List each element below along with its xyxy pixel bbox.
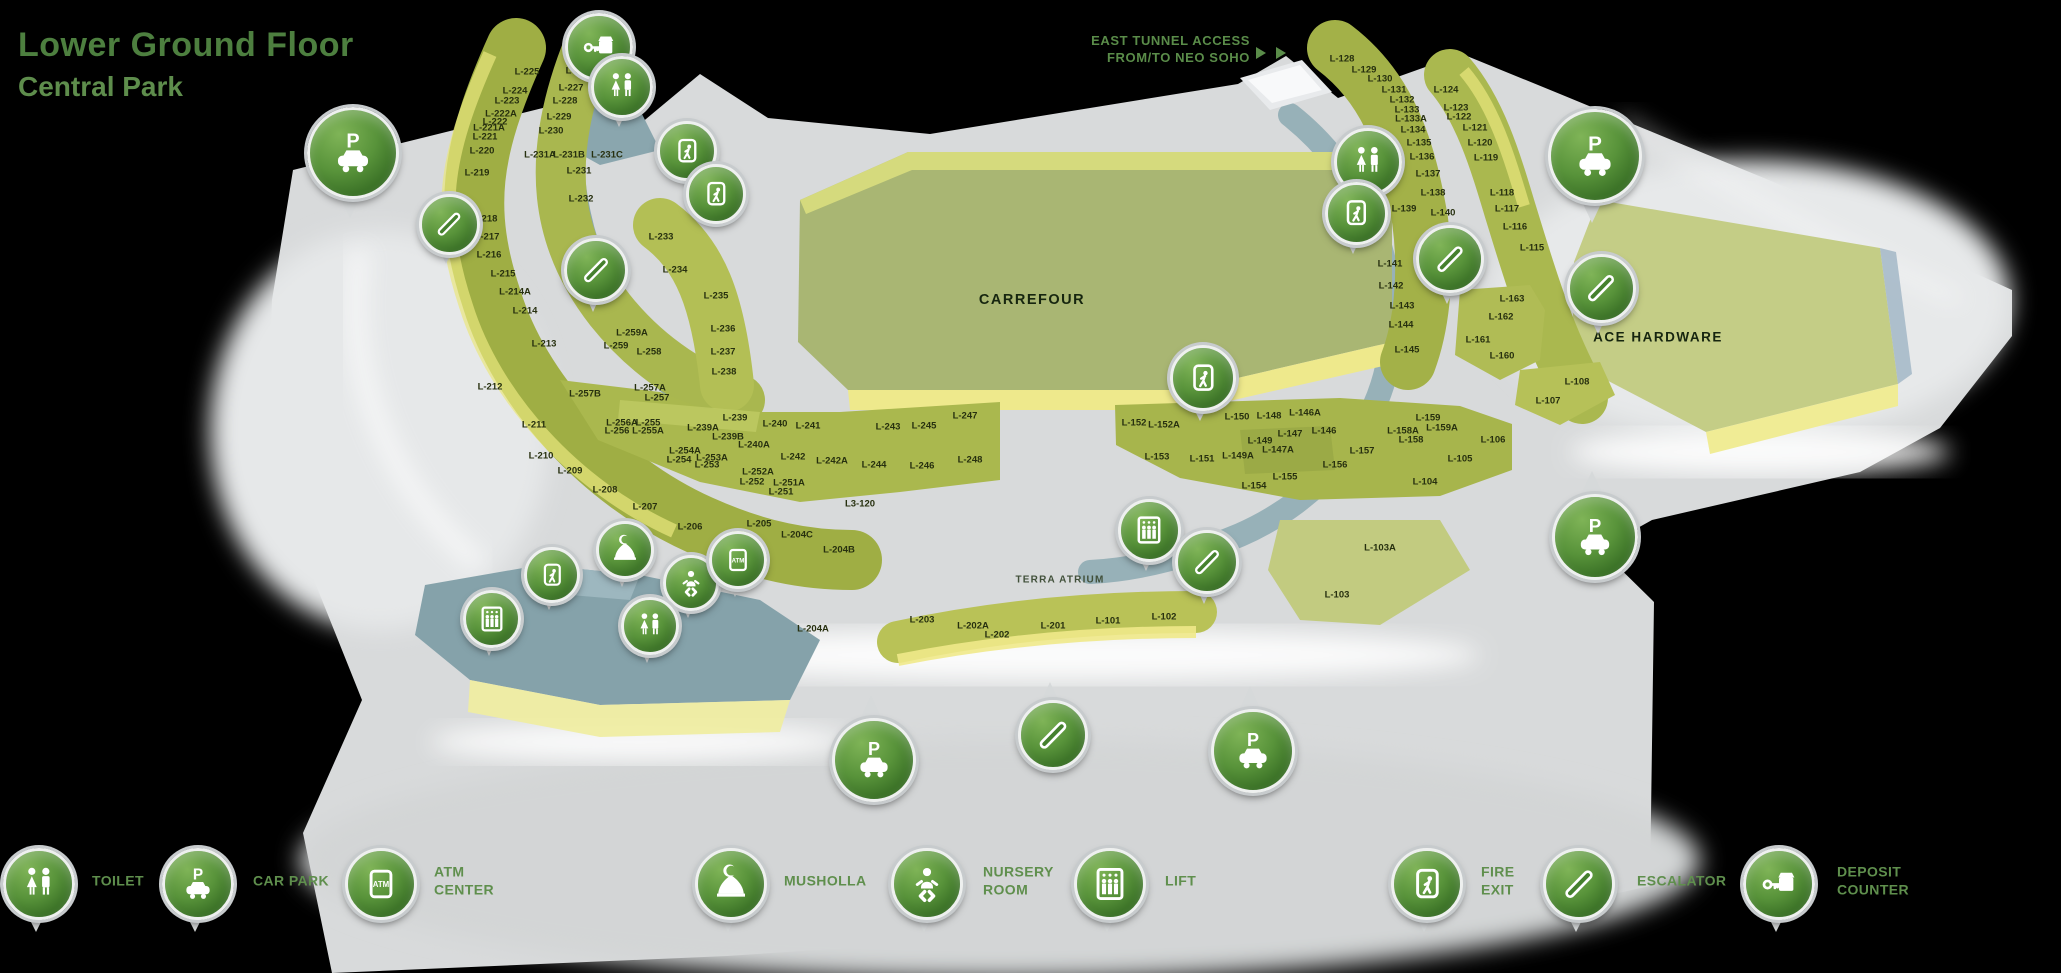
toilet-icon xyxy=(634,610,666,642)
unit-label-L-256: L-256 xyxy=(605,426,630,437)
unit-label-L-257: L-257 xyxy=(645,393,670,404)
unit-label-L-104: L-104 xyxy=(1413,477,1438,488)
lift-pin xyxy=(1118,499,1175,556)
musholla-icon xyxy=(711,864,752,905)
unit-label-L3-120: L3-120 xyxy=(845,499,875,510)
unit-label-L-106: L-106 xyxy=(1481,435,1506,446)
lift-icon xyxy=(1090,864,1131,905)
unit-label-L-151: L-151 xyxy=(1190,454,1215,465)
unit-label-L-203: L-203 xyxy=(910,615,935,626)
unit-label-L-251: L-251 xyxy=(769,487,794,498)
unit-label-L-212: L-212 xyxy=(478,382,503,393)
unit-label-L-105: L-105 xyxy=(1448,454,1473,465)
unit-label-L-202: L-202 xyxy=(985,630,1010,641)
toilet-pin xyxy=(621,597,673,649)
legend-label-escalator: ESCALATOR xyxy=(1637,872,1726,890)
carpark-pin xyxy=(162,848,228,914)
unit-label-L-241: L-241 xyxy=(796,421,821,432)
carpark-pin xyxy=(1552,494,1632,574)
carpark-pin-bubble xyxy=(832,718,916,802)
unit-label-L-145: L-145 xyxy=(1395,345,1420,356)
fireexit-pin-bubble xyxy=(1170,345,1236,411)
atm-pin xyxy=(345,848,411,914)
fireexit-pin xyxy=(686,164,740,218)
escalator-pin-bubble xyxy=(419,194,480,255)
unit-label-L-259A: L-259A xyxy=(616,328,648,339)
unit-label-L-259: L-259 xyxy=(604,341,629,352)
lift-pin-bubble xyxy=(1074,848,1146,920)
escalator-pin-bubble xyxy=(1018,700,1088,770)
unit-label-L-138: L-138 xyxy=(1421,188,1446,199)
unit-label-L-122: L-122 xyxy=(1447,112,1472,123)
deposit-pin-bubble xyxy=(1743,848,1815,920)
unit-label-L-154: L-154 xyxy=(1242,481,1267,492)
unit-label-L-143: L-143 xyxy=(1390,301,1415,312)
legend-label-atm: ATM CENTER xyxy=(434,864,494,899)
carpark-pin xyxy=(832,718,910,796)
escalator-icon xyxy=(1582,269,1621,308)
unit-label-L-133A: L-133A xyxy=(1395,114,1427,125)
atm-pin xyxy=(709,531,761,583)
unit-label-L-134: L-134 xyxy=(1401,125,1426,136)
carpark-icon xyxy=(850,736,898,784)
nursery-icon xyxy=(907,864,948,905)
unit-label-L-233: L-233 xyxy=(649,232,674,243)
unit-label-L-228: L-228 xyxy=(553,96,578,107)
lift-pin xyxy=(1074,848,1140,914)
page-title: Lower Ground Floor Central Park xyxy=(18,26,354,103)
fireexit-pin-bubble xyxy=(524,547,580,603)
deposit-icon xyxy=(1759,864,1800,905)
unit-label-L-117: L-117 xyxy=(1495,204,1519,215)
unit-label-L-221: L-221 xyxy=(473,132,498,143)
escalator-pin xyxy=(419,194,474,249)
unit-label-L-158: L-158 xyxy=(1399,435,1424,446)
unit-label-L-244: L-244 xyxy=(862,460,887,471)
lift-pin-bubble xyxy=(463,590,521,648)
unit-label-L-160: L-160 xyxy=(1490,351,1515,362)
fireexit-pin xyxy=(1391,848,1457,914)
unit-label-L-210: L-210 xyxy=(529,451,554,462)
fireexit-icon xyxy=(1339,196,1374,231)
unit-label-L-204C: L-204C xyxy=(781,530,813,541)
lift-icon xyxy=(476,603,508,635)
floor-title: Lower Ground Floor xyxy=(18,26,354,65)
unit-label-L-148: L-148 xyxy=(1257,411,1282,422)
unit-label-L-231A: L-231A xyxy=(524,150,556,161)
unit-label-L-240A: L-240A xyxy=(738,440,770,451)
tunnel-arrow-icon xyxy=(1276,47,1286,59)
fireexit-pin xyxy=(524,547,574,597)
atm-icon xyxy=(361,864,402,905)
unit-label-L-120: L-120 xyxy=(1468,138,1493,149)
toilet-pin-bubble xyxy=(621,597,679,655)
unit-label-L-227: L-227 xyxy=(559,83,584,94)
unit-label-L-242A: L-242A xyxy=(816,456,848,467)
unit-label-L-147: L-147 xyxy=(1278,429,1303,440)
unit-label-L-153: L-153 xyxy=(1145,452,1170,463)
nursery-pin xyxy=(891,848,957,914)
unit-label-L-204B: L-204B xyxy=(823,545,855,556)
east-tunnel-label: EAST TUNNEL ACCESS FROM/TO NEO SOHO xyxy=(1091,33,1250,67)
escalator-icon xyxy=(578,252,614,288)
legend-label-carpark: CAR PARK xyxy=(253,872,329,890)
unit-label-L-144: L-144 xyxy=(1389,320,1414,331)
escalator-pin xyxy=(1416,225,1478,287)
musholla-pin xyxy=(596,521,648,573)
unit-label-L-208: L-208 xyxy=(593,485,618,496)
toilet-icon xyxy=(19,864,60,905)
nursery-icon xyxy=(676,568,707,599)
unit-label-L-231: L-231 xyxy=(567,166,592,177)
fireexit-pin-bubble xyxy=(1391,848,1463,920)
musholla-icon xyxy=(609,534,641,566)
unit-label-L-150: L-150 xyxy=(1225,412,1250,423)
legend-label-deposit: DEPOSIT COUNTER xyxy=(1837,864,1909,899)
carpark-pin-bubble xyxy=(307,107,399,199)
unit-label-L-230: L-230 xyxy=(539,126,564,137)
unit-label-L-213: L-213 xyxy=(532,339,557,350)
escalator-pin xyxy=(1175,530,1233,588)
unit-label-L-215: L-215 xyxy=(491,269,516,280)
escalator-pin xyxy=(564,238,622,296)
unit-label-L-128: L-128 xyxy=(1330,54,1355,65)
carpark-pin-bubble xyxy=(1548,109,1642,203)
unit-label-L-159A: L-159A xyxy=(1426,423,1458,434)
unit-label-L-214A: L-214A xyxy=(499,287,531,298)
atm-pin-bubble xyxy=(709,531,767,589)
mall-floorplan: P ATM xyxy=(0,0,2061,973)
unit-label-L-255A: L-255A xyxy=(632,426,664,437)
unit-label-L-252: L-252 xyxy=(740,477,765,488)
unit-label-L-141: L-141 xyxy=(1378,259,1403,270)
toilet-pin xyxy=(3,848,69,914)
unit-label-L-152: L-152 xyxy=(1122,418,1147,429)
unit-label-L-214: L-214 xyxy=(513,306,538,317)
unit-label-L-101: L-101 xyxy=(1096,616,1121,627)
unit-label-L-161: L-161 xyxy=(1466,335,1491,346)
unit-label-L-238: L-238 xyxy=(712,367,737,378)
fireexit-icon xyxy=(537,560,568,591)
atm-pin-bubble xyxy=(345,848,417,920)
unit-label-L-223: L-223 xyxy=(495,96,520,107)
unit-label-L-137: L-137 xyxy=(1416,169,1441,180)
unit-label-L-103A: L-103A xyxy=(1364,543,1396,554)
carpark-pin xyxy=(1211,709,1289,787)
musholla-pin-bubble xyxy=(695,848,767,920)
escalator-pin xyxy=(1543,848,1609,914)
unit-label-L-242: L-242 xyxy=(781,452,806,463)
carpark-icon xyxy=(178,864,219,905)
unit-label-L-156: L-156 xyxy=(1323,460,1348,471)
lift-pin xyxy=(463,590,515,642)
unit-label-L-140: L-140 xyxy=(1431,208,1456,219)
lift-pin-bubble xyxy=(1118,499,1181,562)
unit-label-L-119: L-119 xyxy=(1474,153,1498,164)
lift-icon xyxy=(1132,513,1167,548)
escalator-pin xyxy=(1567,254,1630,317)
unit-label-L-235: L-235 xyxy=(704,291,729,302)
unit-label-L-236: L-236 xyxy=(711,324,736,335)
toilet-icon xyxy=(605,70,640,105)
unit-label-L-201: L-201 xyxy=(1041,621,1066,632)
unit-label-L-124: L-124 xyxy=(1434,85,1459,96)
unit-label-L-205: L-205 xyxy=(747,519,772,530)
escalator-pin-bubble xyxy=(1543,848,1615,920)
unit-label-L-162: L-162 xyxy=(1489,312,1514,323)
musholla-pin-bubble xyxy=(596,521,654,579)
fireexit-icon xyxy=(1407,864,1448,905)
atm-icon xyxy=(722,544,754,576)
unit-label-L-102: L-102 xyxy=(1152,612,1177,623)
fireexit-pin-bubble xyxy=(1325,182,1388,245)
deposit-pin xyxy=(1743,848,1809,914)
unit-label-L-136: L-136 xyxy=(1410,152,1435,163)
carpark-pin-bubble xyxy=(1552,494,1638,580)
unit-label-L-206: L-206 xyxy=(678,522,703,533)
unit-label-L-254: L-254 xyxy=(667,455,692,466)
unit-label-L-257B: L-257B xyxy=(569,389,601,400)
toilet-pin-bubble xyxy=(591,56,653,118)
carpark-pin xyxy=(307,107,393,193)
unit-label-L-231B: L-231B xyxy=(553,150,585,161)
unit-label-L-142: L-142 xyxy=(1379,281,1404,292)
unit-label-L-253: L-253 xyxy=(695,460,720,471)
unit-label-L-216: L-216 xyxy=(477,250,502,261)
unit-label-L-234: L-234 xyxy=(663,265,688,276)
unit-label-L-103: L-103 xyxy=(1325,590,1350,601)
ace-hardware-label: ACE HARDWARE xyxy=(1593,330,1723,345)
escalator-icon xyxy=(1189,544,1225,580)
legend-label-fireexit: FIRE EXIT xyxy=(1481,864,1515,899)
unit-label-L-155: L-155 xyxy=(1273,472,1298,483)
escalator-pin xyxy=(1018,700,1082,764)
escalator-pin-bubble xyxy=(1175,530,1239,594)
escalator-pin-bubble xyxy=(1416,225,1484,293)
unit-label-L-130: L-130 xyxy=(1368,74,1393,85)
toilet-pin-bubble xyxy=(3,848,75,920)
unit-label-L-115: L-115 xyxy=(1520,243,1544,254)
toilet-icon xyxy=(1349,143,1387,181)
toilet-pin xyxy=(591,56,647,112)
terra-atrium-label: TERRA ATRIUM xyxy=(1015,575,1104,586)
unit-label-L-207: L-207 xyxy=(633,502,658,513)
fireexit-icon xyxy=(700,178,733,211)
carpark-icon xyxy=(327,127,380,180)
carpark-pin-bubble xyxy=(162,848,234,920)
nursery-pin-bubble xyxy=(891,848,963,920)
unit-label-L-219: L-219 xyxy=(465,168,490,179)
unit-label-L-232: L-232 xyxy=(569,194,594,205)
unit-label-L-229: L-229 xyxy=(547,112,572,123)
carrefour-label: CARREFOUR xyxy=(979,292,1085,308)
unit-label-L-147A: L-147A xyxy=(1262,445,1294,456)
unit-label-L-258: L-258 xyxy=(637,347,662,358)
unit-label-L-163: L-163 xyxy=(1500,294,1525,305)
fireexit-pin-bubble xyxy=(686,164,746,224)
unit-label-L-146: L-146 xyxy=(1312,426,1337,437)
unit-label-L-209: L-209 xyxy=(558,466,583,477)
legend-label-musholla: MUSHOLLA xyxy=(784,872,867,890)
legend-label-nursery: NURSERY ROOM xyxy=(983,864,1054,899)
unit-label-L-118: L-118 xyxy=(1490,188,1514,199)
escalator-icon xyxy=(1033,715,1073,755)
legend-label-toilet: TOILET xyxy=(92,872,144,890)
unit-label-L-239: L-239 xyxy=(723,413,748,424)
unit-label-L-237: L-237 xyxy=(711,347,736,358)
unit-label-L-135: L-135 xyxy=(1407,138,1432,149)
carpark-icon xyxy=(1568,129,1623,184)
unit-label-L-146A: L-146A xyxy=(1289,408,1321,419)
carpark-pin xyxy=(1548,109,1636,197)
tunnel-arrow-icon xyxy=(1256,47,1266,59)
unit-label-L-204A: L-204A xyxy=(797,624,829,635)
fireexit-pin xyxy=(1170,345,1230,405)
unit-label-L-246: L-246 xyxy=(910,461,935,472)
escalator-icon xyxy=(1559,864,1600,905)
unit-label-L-157: L-157 xyxy=(1350,446,1375,457)
fireexit-pin xyxy=(1325,182,1382,239)
unit-label-L-240: L-240 xyxy=(763,419,788,430)
legend-label-lift: LIFT xyxy=(1165,872,1196,890)
escalator-icon xyxy=(432,207,466,241)
unit-label-L-149A: L-149A xyxy=(1222,451,1254,462)
musholla-pin xyxy=(695,848,761,914)
unit-label-L-247: L-247 xyxy=(953,411,978,422)
unit-label-L-116: L-116 xyxy=(1503,222,1527,233)
unit-label-L-107: L-107 xyxy=(1536,396,1561,407)
unit-label-L-225: L-225 xyxy=(515,67,540,78)
unit-label-L-152A: L-152A xyxy=(1148,420,1180,431)
unit-label-L-245: L-245 xyxy=(912,421,937,432)
carpark-icon xyxy=(1229,727,1277,775)
fireexit-icon xyxy=(671,135,704,168)
fireexit-icon xyxy=(1185,360,1222,397)
escalator-icon xyxy=(1431,240,1469,278)
unit-label-L-139: L-139 xyxy=(1392,204,1417,215)
carpark-icon xyxy=(1570,512,1620,562)
unit-label-L-121: L-121 xyxy=(1463,123,1488,134)
carrefour-block xyxy=(798,152,1392,390)
mall-name: Central Park xyxy=(18,71,354,103)
unit-label-L-108: L-108 xyxy=(1565,377,1590,388)
unit-label-L-243: L-243 xyxy=(876,422,901,433)
unit-label-L-248: L-248 xyxy=(958,455,983,466)
escalator-pin-bubble xyxy=(1567,254,1636,323)
carpark-pin-bubble xyxy=(1211,709,1295,793)
unit-label-L-231C: L-231C xyxy=(591,150,623,161)
escalator-pin-bubble xyxy=(564,238,628,302)
unit-label-L-220: L-220 xyxy=(470,146,495,157)
unit-label-L-211: L-211 xyxy=(522,420,546,431)
